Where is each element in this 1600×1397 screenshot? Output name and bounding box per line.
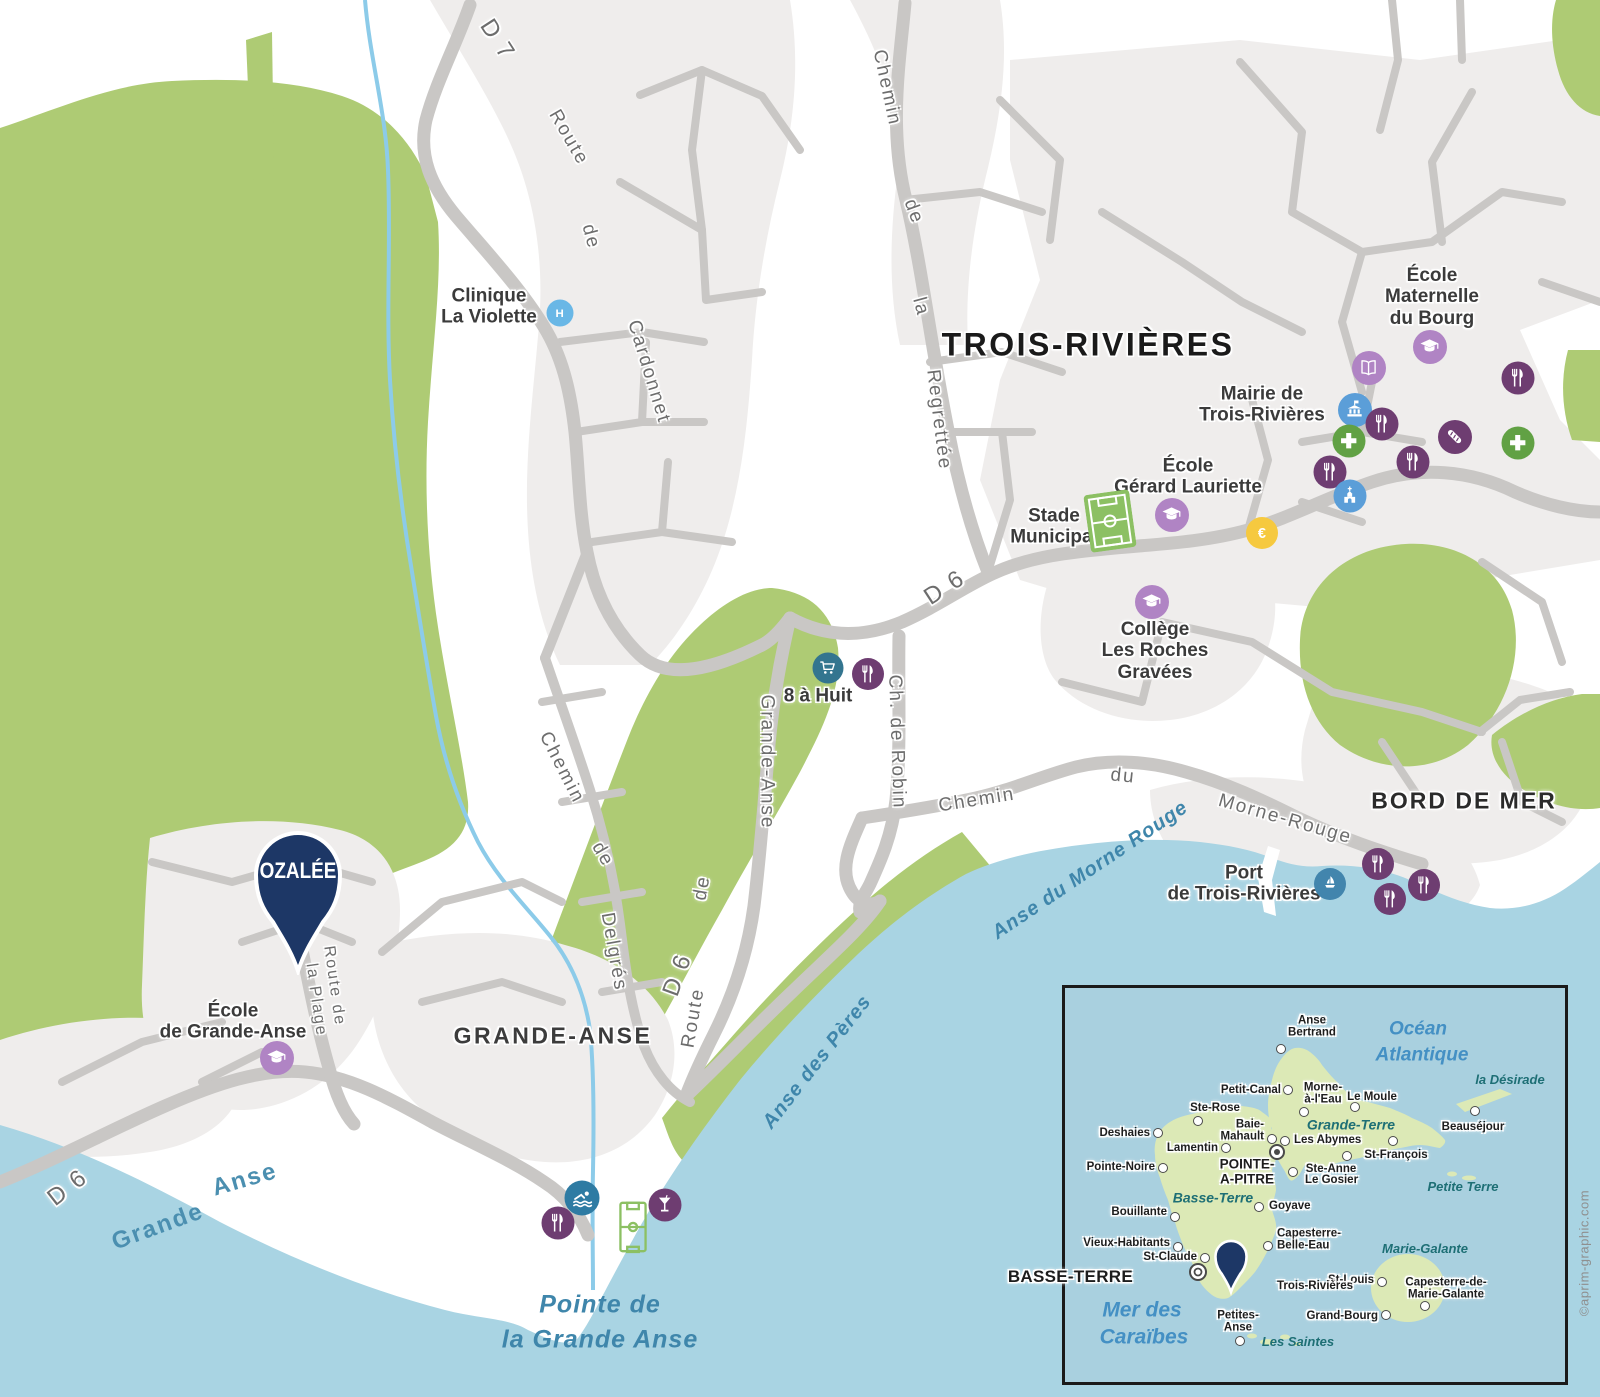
inset-town-dot [1263,1241,1273,1251]
inset-town-dot [1200,1253,1210,1263]
inset-town-label-prefecture: POINTE-A-PITRE [1220,1157,1275,1186]
credit-line: ©aprim-graphic.com [1577,1190,1592,1316]
inset-town-label: Grand-Bourg [1306,1310,1378,1322]
inset-town-dot [1221,1143,1231,1153]
inset-town-label: Vieux-Habitants [1083,1237,1170,1249]
inset-overlay-layer: OcéanAtlantiqueMer desCaraïbesGrande-Ter… [0,0,1600,1397]
inset-town-dot [1280,1136,1290,1146]
inset-town-dot [1283,1085,1293,1095]
inset-island-label: la Désirade [1475,1073,1544,1087]
inset-town-dot [1276,1044,1286,1054]
inset-sea-label: Atlantique [1376,1046,1469,1067]
inset-town-dot [1350,1102,1360,1112]
inset-town-label: Pointe-Noire [1087,1161,1155,1173]
inset-town-dot [1381,1310,1391,1320]
inset-town-label: Bouillante [1111,1206,1167,1218]
inset-island-label: Petite Terre [1427,1180,1498,1194]
inset-town-dot [1235,1336,1245,1346]
inset-town-label: AnseBertrand [1288,1015,1336,1040]
inset-island-label: Basse-Terre [1173,1190,1253,1205]
inset-town-dot [1470,1106,1480,1116]
inset-town-dot [1299,1107,1309,1117]
inset-sea-label: Océan [1389,1020,1447,1041]
inset-town-label: Ste-Rose [1190,1102,1240,1114]
inset-island-label: Marie-Galante [1382,1242,1468,1256]
inset-town-label: St-Claude [1143,1251,1197,1263]
inset-town-dot [1254,1202,1264,1212]
inset-town-label: Goyave [1269,1200,1311,1212]
inset-town-dot [1420,1301,1430,1311]
inset-town-label: Capesterre-de-Marie-Galante [1405,1277,1486,1302]
map-canvas: € H [0,0,1600,1397]
inset-town-label: Le Gosier [1305,1174,1358,1186]
inset-town-dot [1153,1128,1163,1138]
inset-town-dot [1388,1136,1398,1146]
inset-sea-label: Caraïbes [1100,1325,1189,1348]
inset-town-label: Morne-à-l'Eau [1304,1082,1342,1107]
inset-town-label-capital: BASSE-TERRE [1008,1268,1133,1286]
inset-island-label: Grande-Terre [1307,1117,1395,1132]
inset-town-dot [1267,1134,1277,1144]
inset-island-label: Les Saintes [1262,1335,1334,1349]
inset-town-label-pin: Trois-Rivières [1277,1280,1353,1292]
inset-town-label: Beauséjour [1442,1121,1505,1133]
inset-town-label: Deshaies [1099,1127,1150,1139]
inset-town-label: St-François [1364,1149,1427,1161]
inset-town-label: Le Moule [1347,1091,1397,1103]
inset-town-label: Capesterre-Belle-Eau [1277,1228,1341,1253]
inset-town-dot [1377,1277,1387,1287]
inset-sea-label: Mer des [1102,1298,1181,1321]
inset-town-label: Les Abymes [1294,1134,1361,1146]
inset-town-dot [1288,1167,1298,1177]
inset-town-dot [1158,1163,1168,1173]
inset-town-dot [1170,1212,1180,1222]
inset-town-label: Petites-Anse [1217,1310,1259,1335]
inset-town-dot [1342,1151,1352,1161]
inset-town-dot [1193,1116,1203,1126]
inset-town-label: Baie-Mahault [1221,1119,1264,1144]
inset-town-label: Petit-Canal [1221,1084,1281,1096]
inset-town-label: Lamentin [1167,1142,1218,1154]
